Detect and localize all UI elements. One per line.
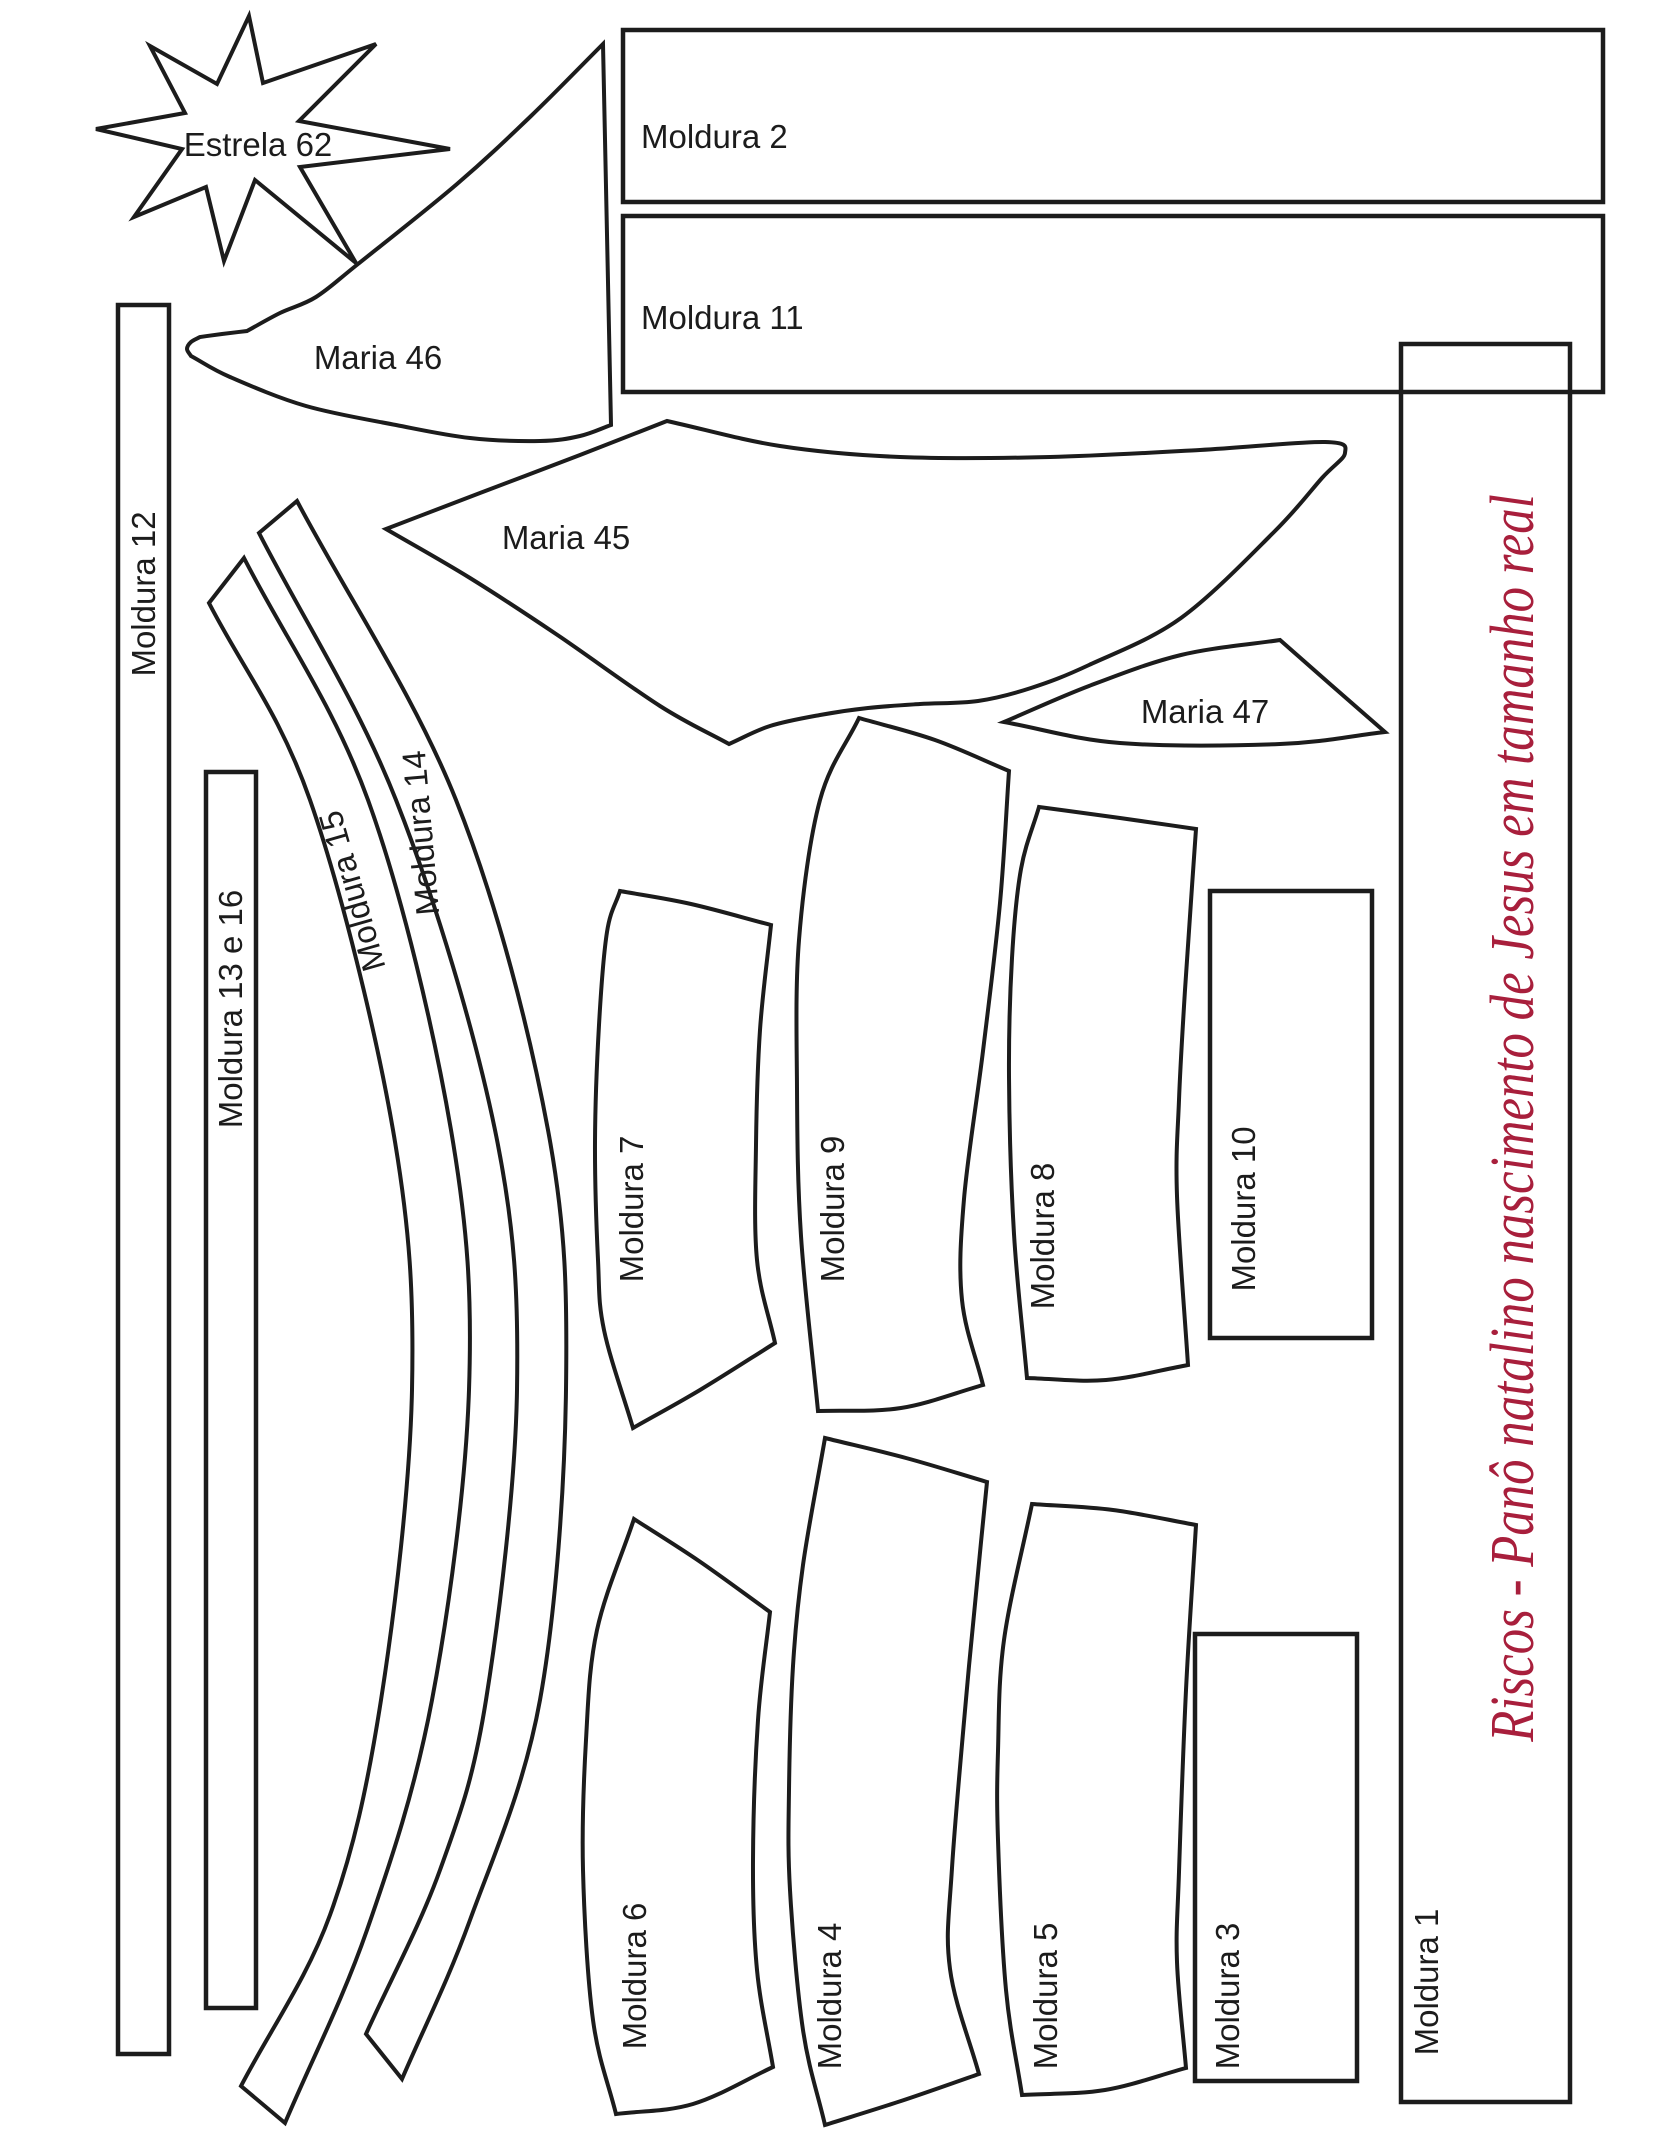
svg-text:Maria 45: Maria 45 xyxy=(502,519,630,556)
svg-text:Moldura 9: Moldura 9 xyxy=(814,1136,851,1283)
svg-text:Moldura 5: Moldura 5 xyxy=(1027,1923,1064,2070)
svg-text:Moldura 7: Moldura 7 xyxy=(613,1136,650,1283)
svg-text:Maria 47: Maria 47 xyxy=(1141,693,1269,730)
svg-text:Moldura 8: Moldura 8 xyxy=(1024,1163,1061,1310)
svg-text:Estrela 62: Estrela 62 xyxy=(184,126,333,163)
svg-text:Moldura 11: Moldura 11 xyxy=(641,299,804,336)
svg-text:Maria 46: Maria 46 xyxy=(314,339,442,376)
svg-text:Moldura 13 e 16: Moldura 13 e 16 xyxy=(212,890,249,1129)
svg-text:Moldura 3: Moldura 3 xyxy=(1209,1923,1246,2070)
svg-text:Riscos - Panô natalino nascime: Riscos - Panô natalino nascimento de Jes… xyxy=(1478,494,1547,1742)
svg-text:Moldura 6: Moldura 6 xyxy=(616,1903,653,2050)
svg-text:Moldura 10: Moldura 10 xyxy=(1225,1126,1262,1291)
svg-text:Moldura 2: Moldura 2 xyxy=(641,118,788,155)
svg-text:Moldura 1: Moldura 1 xyxy=(1408,1909,1445,2056)
svg-text:Moldura 4: Moldura 4 xyxy=(811,1923,848,2070)
svg-text:Moldura 12: Moldura 12 xyxy=(125,511,162,676)
